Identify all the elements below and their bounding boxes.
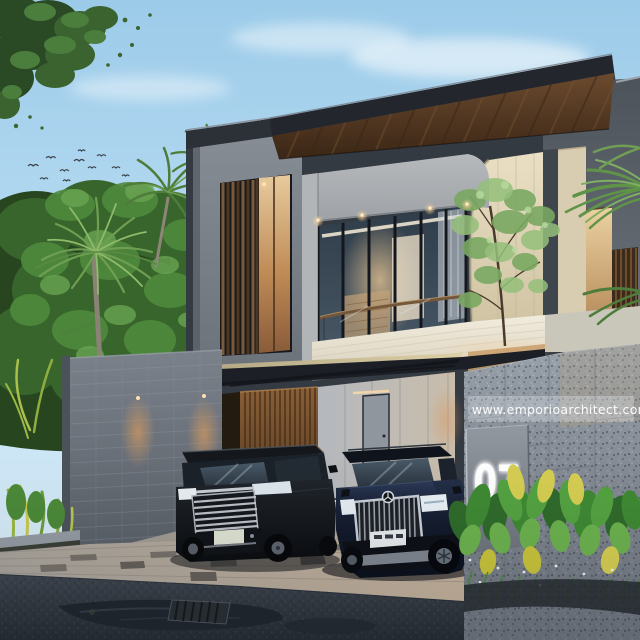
dusk-vignette [0, 0, 640, 640]
render-canvas: www.emporioarchitect.com 07 [0, 0, 640, 640]
render-viewport: www.emporioarchitect.com 07 [0, 0, 640, 640]
